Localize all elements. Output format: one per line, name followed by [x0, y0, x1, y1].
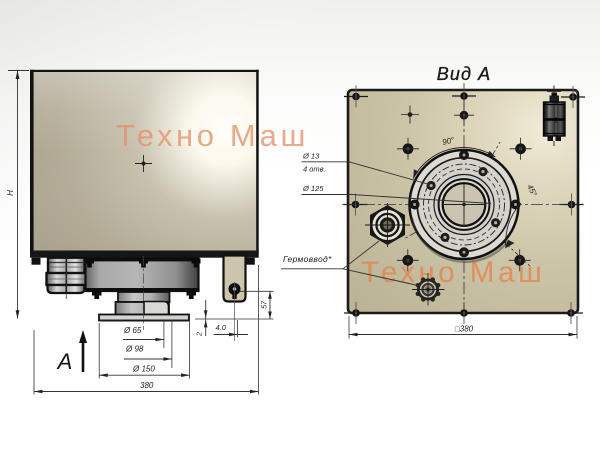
svg-text:Ø 150: Ø 150	[132, 365, 155, 374]
svg-text:57: 57	[262, 300, 269, 309]
svg-text:A: A	[56, 349, 73, 374]
svg-text:Ø 125: Ø 125	[302, 184, 324, 193]
svg-text:□380: □380	[455, 325, 474, 334]
svg-text:2: 2	[197, 332, 204, 337]
svg-text:Ø 98: Ø 98	[125, 345, 144, 354]
svg-text:Гермоввод*: Гермоввод*	[283, 254, 332, 264]
svg-text:380: 380	[140, 381, 154, 390]
svg-text:H: H	[6, 190, 15, 196]
svg-text:Вид А: Вид А	[437, 64, 491, 84]
svg-text:Ø 13: Ø 13	[302, 152, 320, 161]
svg-text:Ø 65: Ø 65	[123, 326, 142, 335]
svg-text:4.0: 4.0	[216, 323, 227, 332]
svg-text:Техно Маш: Техно Маш	[116, 118, 309, 153]
svg-text:4 отв.: 4 отв.	[303, 165, 326, 174]
